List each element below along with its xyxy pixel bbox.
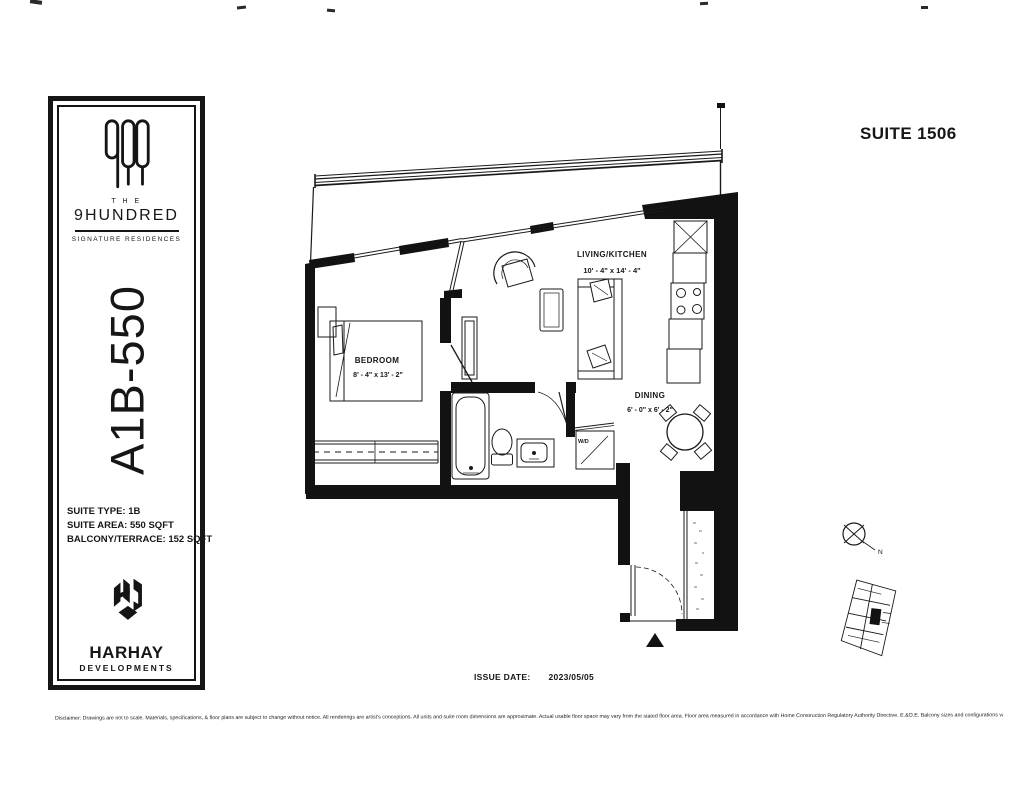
title-block-panel: T H E 9HUNDRED SIGNATURE RESIDENCES A1B-… (48, 96, 205, 690)
coffee-table (540, 289, 563, 331)
spec-balcony-area: BALCONY/TERRACE: 152 SQFT (67, 533, 212, 547)
the-9hundred-logo (104, 116, 150, 192)
keyplan-suite-highlight (870, 608, 882, 625)
suite-specs: SUITE TYPE: 1B SUITE AREA: 550 SQFT BALC… (67, 505, 212, 547)
floorplan-page: SUITE 1506 T H E 9HUNDRED SIGNATURE RESI… (0, 0, 1024, 791)
compass-icon (843, 523, 875, 550)
bathroom-door (538, 392, 567, 425)
spec-suite-area: SUITE AREA: 550 SQFT (67, 519, 212, 533)
floorplan-drawing: BEDROOM 8' - 4" x 13' - 2" LIVING/KITCHE… (290, 95, 760, 665)
counter (667, 349, 700, 383)
dining-label: DINING (635, 391, 665, 400)
room-labels: BEDROOM 8' - 4" x 13' - 2" LIVING/KITCHE… (353, 250, 673, 445)
living-kitchen-label: LIVING/KITCHEN (577, 250, 647, 259)
harhay-logo (99, 575, 155, 633)
plan-code: A1B-550 (99, 285, 154, 475)
suite-entry (630, 565, 682, 647)
bathroom-fixtures (452, 393, 554, 479)
sofa (578, 279, 622, 379)
developer-name: HARHAY (59, 643, 194, 663)
bedroom-label: BEDROOM (355, 356, 400, 365)
pillow (333, 325, 343, 355)
kitchen-fixtures (667, 221, 707, 383)
disclaimer-text: Disclaimer: Drawings are not to scale. M… (55, 712, 1003, 721)
counter (669, 319, 702, 349)
interior-walls (440, 241, 630, 499)
media-unit (462, 317, 477, 379)
washer-dryer-label: W/D (578, 439, 589, 445)
bedroom-furniture (313, 307, 438, 463)
entry-door-swing (636, 567, 682, 614)
brand-tagline: SIGNATURE RESIDENCES (59, 236, 194, 243)
spec-suite-type: SUITE TYPE: 1B (67, 505, 212, 519)
dining-table (667, 414, 703, 450)
bedroom-dims: 8' - 4" x 13' - 2" (353, 372, 403, 379)
toilet (492, 429, 512, 455)
brand-the: T H E (59, 198, 194, 205)
stove (671, 283, 704, 319)
washer-dryer-closet (574, 423, 614, 469)
suite-number-label: SUITE 1506 (860, 124, 957, 144)
title-block-inner-border: T H E 9HUNDRED SIGNATURE RESIDENCES A1B-… (57, 105, 196, 681)
brand-name: 9HUNDRED (59, 207, 194, 225)
scan-artifact (237, 6, 246, 10)
closet-sliding-doors (313, 441, 438, 463)
armchair (494, 252, 535, 287)
issue-date: ISSUE DATE: 2023/05/05 (474, 672, 594, 682)
balcony-terrace-railing (311, 103, 726, 263)
entry-marker-triangle (646, 633, 664, 647)
scan-artifact (327, 9, 335, 13)
brand-divider (75, 230, 179, 232)
scan-artifact (921, 6, 928, 9)
scan-artifact (30, 0, 42, 5)
counter (673, 253, 706, 283)
issue-date-label: ISSUE DATE: (474, 672, 531, 682)
pillow (590, 279, 612, 302)
issue-date-value: 2023/05/05 (549, 672, 595, 682)
developer-sub: DEVELOPMENTS (59, 663, 194, 673)
scan-artifact (700, 2, 708, 6)
balcony-leg (693, 523, 704, 609)
living-kitchen-dims: 10' - 4" x 14' - 4" (583, 266, 641, 275)
keyplan (840, 579, 896, 656)
dining-dims: 6' - 0" x 6' - 2" (627, 407, 673, 414)
compass-keyplan: N (828, 508, 918, 668)
kitchen-sink (674, 221, 707, 253)
compass-north-label: N (878, 549, 883, 556)
